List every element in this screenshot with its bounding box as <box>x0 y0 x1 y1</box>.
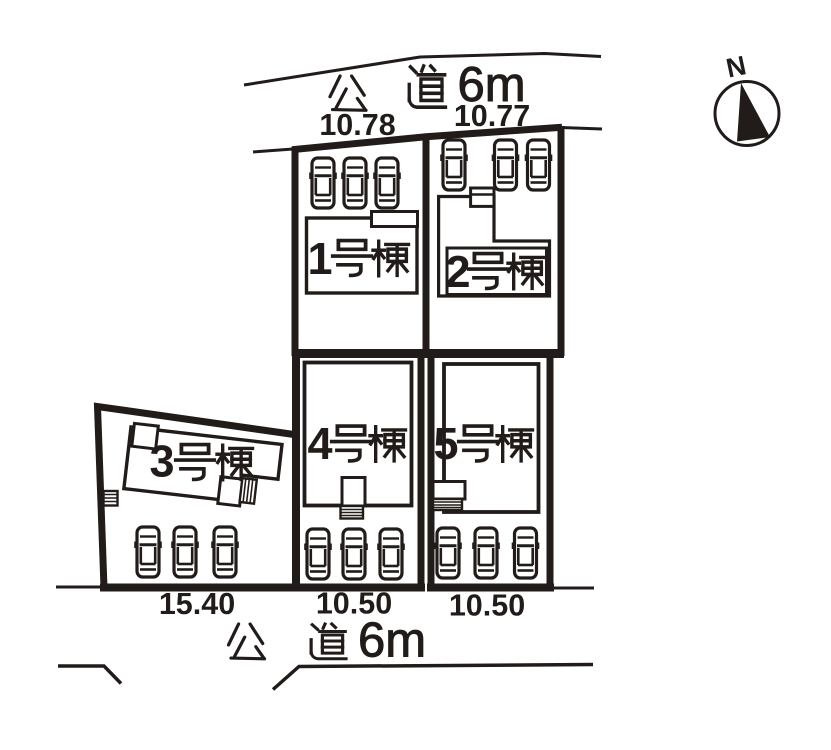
svg-text:10.78: 10.78 <box>319 108 395 142</box>
svg-text:3: 3 <box>149 436 174 487</box>
svg-text:10.50: 10.50 <box>449 589 525 623</box>
svg-text:4: 4 <box>307 418 332 469</box>
svg-text:15.40: 15.40 <box>159 587 235 621</box>
svg-text:6m: 6m <box>358 614 426 668</box>
svg-text:5: 5 <box>433 418 458 469</box>
svg-text:2: 2 <box>445 246 470 297</box>
svg-text:1: 1 <box>307 233 332 284</box>
